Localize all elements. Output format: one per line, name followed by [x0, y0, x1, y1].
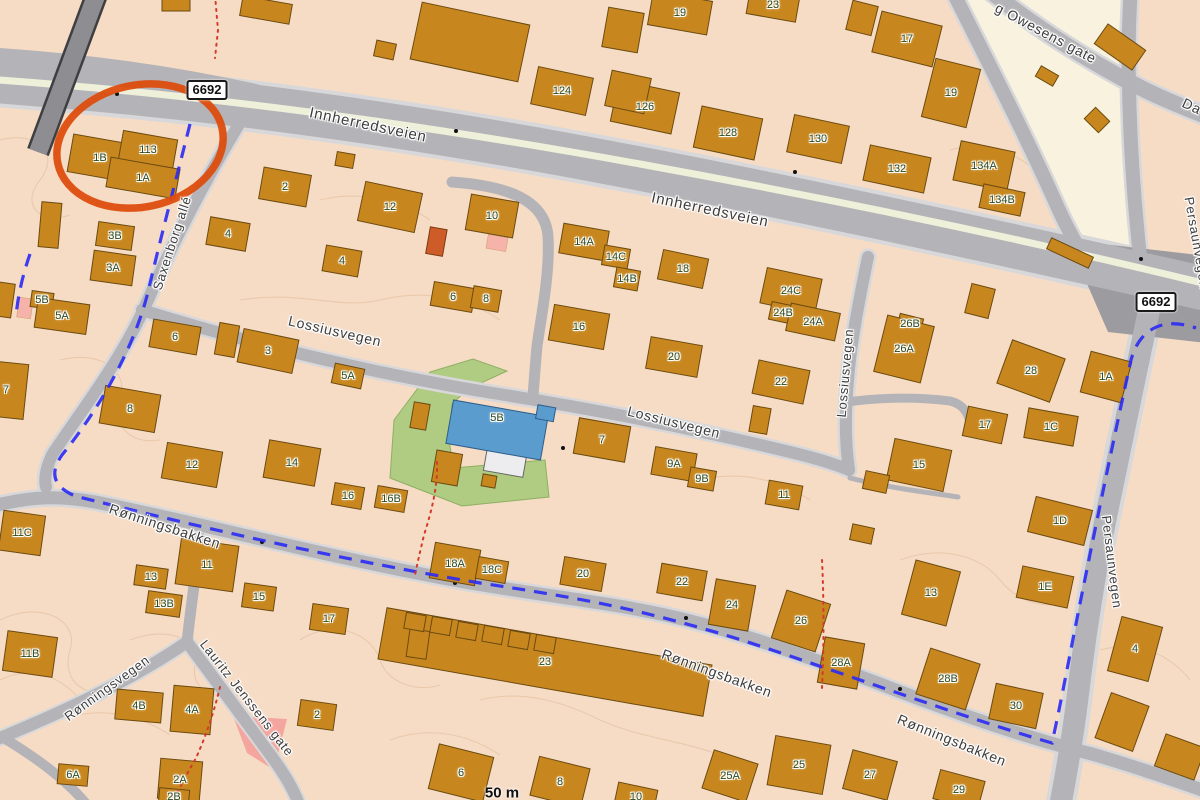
building-footprint [482, 625, 504, 644]
building-footprint [38, 202, 62, 249]
building-footprint [146, 591, 183, 618]
building-footprint [746, 0, 800, 22]
building-footprint [850, 524, 875, 544]
building-footprint [162, 0, 190, 11]
building-footprint [431, 450, 462, 486]
building-footprint [1016, 566, 1074, 608]
building-footprint [0, 510, 46, 555]
building-footprint [708, 579, 755, 631]
building-footprint [161, 442, 222, 487]
building-footprint [406, 629, 430, 660]
building-footprint [240, 0, 293, 24]
footpath-dotted-line [215, 0, 218, 58]
building-footprint [263, 440, 321, 486]
building-footprint [470, 286, 501, 313]
building-footprint [843, 750, 898, 800]
building-footprint [560, 557, 606, 592]
building-footprint [297, 700, 336, 731]
building-footprint [374, 486, 407, 513]
building-footprint [115, 689, 163, 723]
building-footprint [886, 438, 951, 491]
map-canvas[interactable]: 1B1131A3B3A5B5A241210468635A8712141616B1… [0, 0, 1200, 800]
building-footprint [481, 474, 497, 488]
building-footprint [646, 337, 703, 378]
building-footprint [962, 406, 1007, 444]
building-footprint [57, 764, 89, 787]
building-footprint [767, 736, 831, 795]
building-footprint [979, 184, 1025, 216]
building-footprint [965, 284, 996, 319]
building-footprint [374, 40, 397, 60]
building-footprint [921, 58, 980, 127]
building-footprint [206, 217, 250, 252]
building-footprint [687, 467, 716, 491]
building-footprint [787, 115, 850, 164]
building-footprint [648, 0, 713, 35]
building-footprint [534, 634, 556, 653]
building-footprint [602, 7, 644, 53]
building-footprint [933, 770, 985, 800]
building-footprint [872, 11, 942, 67]
building-footprint [241, 583, 276, 611]
building-footprint [613, 267, 640, 291]
building-footprint [410, 2, 530, 82]
building-footprint [693, 106, 762, 160]
building-footprint [749, 406, 771, 435]
building-footprint [817, 637, 864, 689]
building-footprint [1107, 617, 1162, 682]
building-footprint [237, 329, 299, 374]
building-footprint [752, 360, 810, 404]
building-footprint [259, 167, 312, 207]
building-footprint [1028, 497, 1093, 546]
building-footprint [34, 298, 90, 335]
building-footprint [786, 303, 841, 341]
building-footprint [765, 480, 803, 510]
building-footprint [2, 631, 57, 678]
building-footprint [997, 340, 1065, 402]
building-footprint [96, 222, 135, 251]
map-graphics [0, 0, 1200, 800]
building-footprint [530, 756, 590, 800]
building-footprint [404, 612, 426, 631]
building-footprint [465, 194, 519, 238]
building-footprint [614, 782, 658, 800]
building-footprint [430, 282, 476, 313]
scale-bar-label: 50 m [485, 785, 519, 800]
building-footprint [605, 70, 652, 114]
building-footprint [657, 250, 708, 289]
building-footprint [862, 471, 889, 494]
building-footprint [1024, 408, 1078, 446]
building-footprint [475, 557, 508, 584]
building-footprint [559, 223, 610, 261]
building-footprint [902, 560, 961, 626]
building-footprint [548, 304, 609, 349]
road-number-badge: 6692 [187, 80, 228, 100]
building-footprint [90, 250, 136, 286]
building-footprint [430, 616, 452, 635]
road-number-badge: 6692 [1136, 292, 1177, 312]
building-footprint [863, 145, 931, 193]
building-footprint [702, 750, 758, 800]
building-footprint [331, 483, 364, 510]
building-footprint [846, 0, 878, 35]
building-footprint [0, 361, 29, 420]
building-footprint [309, 604, 348, 635]
building-footprint [601, 245, 630, 269]
building-footprint [175, 538, 239, 592]
building-footprint [573, 418, 630, 462]
building-footprint [508, 630, 530, 649]
building-footprint [0, 282, 15, 318]
building-footprint [335, 152, 355, 169]
building-footprint [531, 67, 594, 116]
building-footprint [99, 385, 161, 432]
building-footprint [456, 621, 478, 640]
building-footprint [322, 245, 362, 277]
building-footprint [657, 563, 708, 601]
building-footprint [357, 181, 422, 232]
building-footprint [1095, 693, 1149, 752]
building-footprint [874, 315, 935, 383]
building-footprint [134, 565, 168, 589]
